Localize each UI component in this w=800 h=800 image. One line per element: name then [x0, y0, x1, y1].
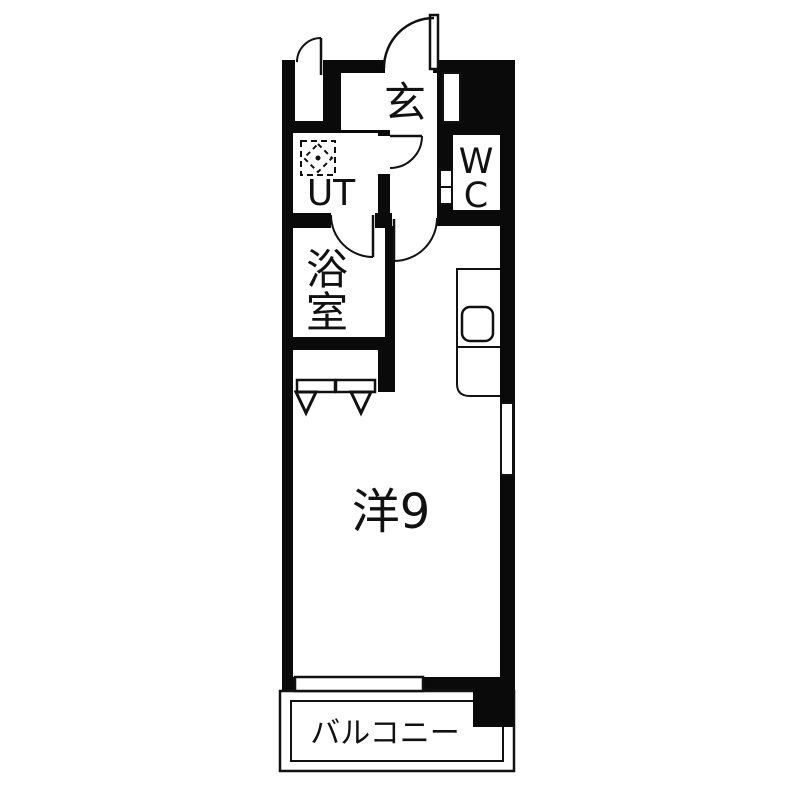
- closet-door-icon: [336, 380, 375, 392]
- main-room-label: 洋9: [352, 484, 431, 540]
- bath-label-char1: 浴: [306, 245, 348, 294]
- wc-folding-door-icon: [440, 170, 452, 187]
- side-window-icon: [501, 403, 513, 475]
- floorplan-canvas: バルコニー: [0, 0, 800, 800]
- utility-label: UT: [307, 173, 356, 214]
- bath-label-char2: 室: [306, 288, 348, 337]
- entrance-label: 玄: [384, 78, 426, 127]
- main-room-floor-right: [395, 226, 500, 677]
- hallway-to-room-gap: [392, 213, 437, 226]
- hallway-floor: [390, 127, 437, 213]
- entrance-door-leaf: [430, 15, 438, 69]
- wc-label-c: C: [464, 176, 488, 216]
- closet-door-icon: [297, 380, 335, 392]
- meter-box-door-gap: [295, 58, 323, 75]
- balcony-label: バルコニー: [310, 716, 459, 751]
- bath-door-gap: [331, 213, 375, 228]
- shoe-cabinet: [443, 73, 460, 122]
- meter-box-floor: [295, 75, 323, 121]
- washing-machine-center-dot: [316, 156, 321, 161]
- wall-block-lower-right: [473, 678, 514, 727]
- entrance-door-gap: [385, 58, 433, 75]
- balcony-window-icon: [295, 677, 423, 691]
- floorplan-drawing: バルコニー: [0, 0, 800, 800]
- utility-door-gap: [378, 136, 390, 174]
- wc-folding-door-icon: [440, 187, 452, 204]
